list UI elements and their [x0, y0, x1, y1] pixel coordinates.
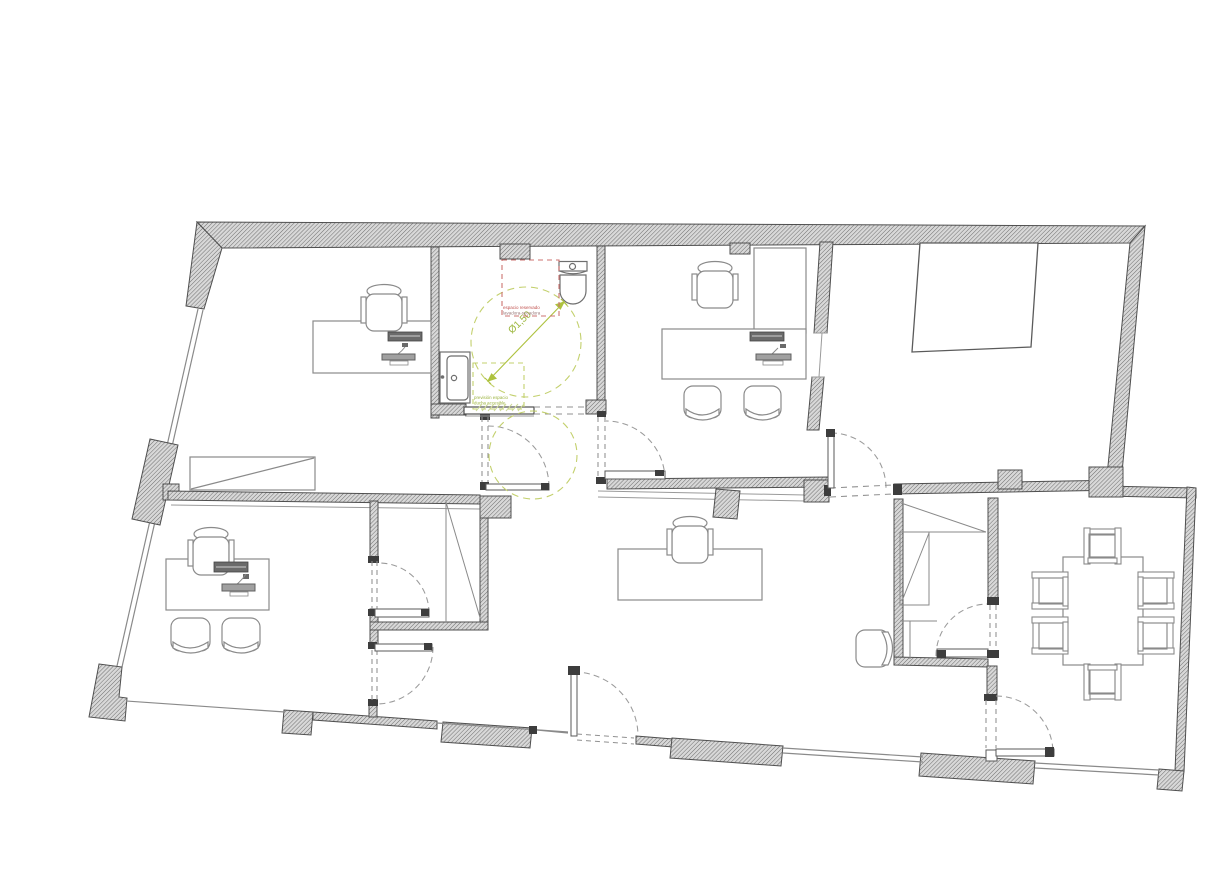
svg-text:previsión espacio: previsión espacio: [474, 395, 508, 400]
svg-text:ducha accesible: ducha accesible: [474, 401, 506, 406]
svg-text:espacio reservado: espacio reservado: [503, 305, 540, 310]
svg-text:lavadora-secadora: lavadora-secadora: [503, 311, 541, 316]
